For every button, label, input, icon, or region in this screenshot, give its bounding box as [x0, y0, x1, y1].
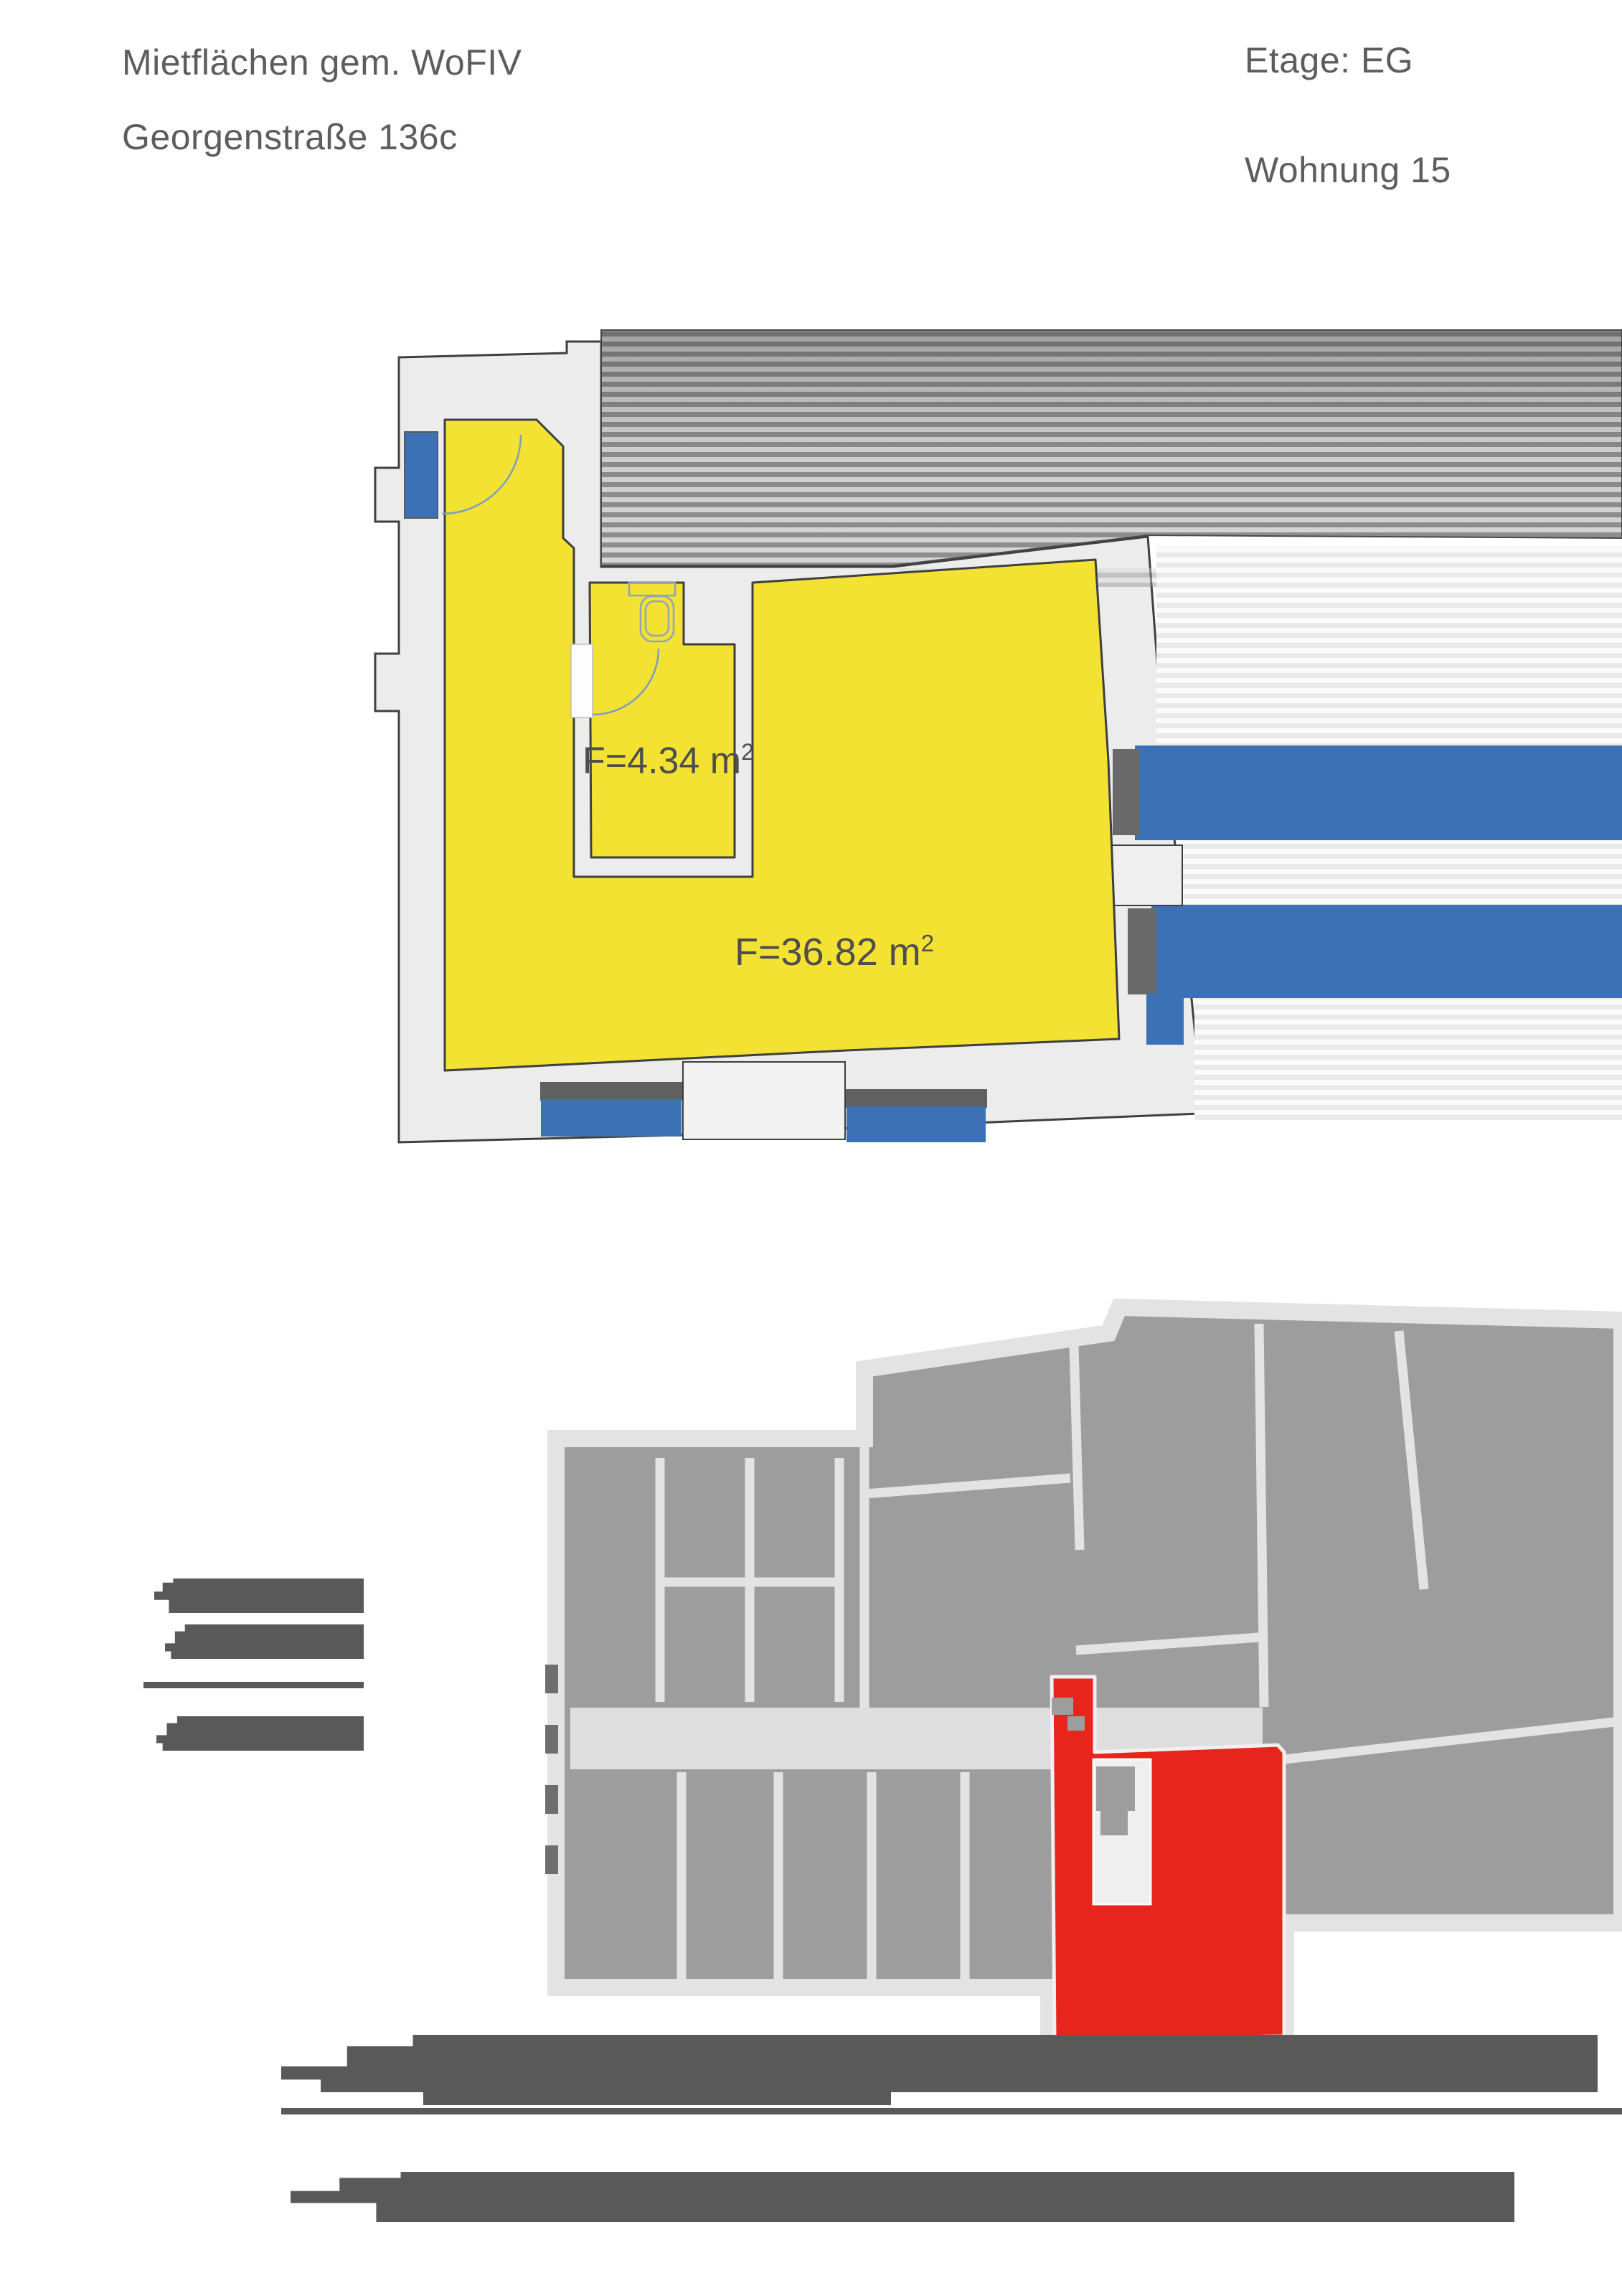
window-corner-right: [1146, 993, 1184, 1045]
window-pier-bottom: [683, 1062, 845, 1139]
sheet-title-line2: Georgenstraße 136c: [122, 116, 458, 158]
smear-stripes-mid: [1182, 840, 1622, 905]
smear-stripes-top: [1156, 547, 1622, 745]
redacted-text-bottom-2: [291, 2172, 1514, 2222]
window-lintel-bottom-1: [540, 1082, 684, 1101]
redacted-text-bottom-1b: [423, 2086, 891, 2105]
window-bottom-2: [847, 1106, 986, 1142]
floorplan-sheet: Mietflächen gem. WoFIV Georgenstraße 136…: [0, 0, 1622, 2296]
unit-red-notch-step-1: [1052, 1698, 1073, 1715]
redacted-text-left-1: [154, 1578, 364, 1613]
smear-stripes-bottom: [1194, 998, 1622, 1120]
sheet-title-line1: Mietflächen gem. WoFIV: [122, 42, 522, 83]
unit-label: Wohnung 15: [1245, 149, 1451, 191]
entry-window: [405, 432, 438, 518]
bathroom-area-label: F=4.34 m2: [583, 739, 754, 782]
redacted-text-bottom-1: [281, 2035, 1598, 2092]
unit-red-toilet-block-1: [1096, 1766, 1135, 1811]
window-reveal-dark-2: [1128, 908, 1156, 994]
redacted-line-left: [143, 1682, 364, 1688]
main-room-area-sup: 2: [921, 931, 935, 957]
detail-plan: [375, 330, 1622, 1142]
main-room-area-value: F=36.82 m: [735, 931, 921, 974]
main-room-area-label: F=36.82 m2: [735, 930, 934, 974]
floorplan-canvas: [0, 0, 1622, 2296]
redacted-text-left-2: [165, 1624, 364, 1659]
window-pier-right: [1112, 845, 1182, 905]
overview-plan: [545, 1307, 1622, 2039]
floor-label: Etage: EG: [1245, 39, 1413, 81]
hatch-band-shading: [601, 330, 1622, 565]
bathroom-area-value: F=4.34 m: [583, 740, 741, 781]
unit-red-notch-step-2: [1067, 1716, 1085, 1731]
window-band-right-1: [1135, 745, 1622, 840]
bathroom-area-sup: 2: [741, 739, 754, 765]
bathroom-door-opening: [571, 644, 593, 717]
window-lintel-bottom-2: [845, 1089, 987, 1108]
window-bottom-1: [541, 1099, 682, 1137]
redacted-line-bottom: [281, 2108, 1622, 2114]
window-band-right-2: [1151, 905, 1622, 998]
unit-red-toilet-block-2: [1100, 1811, 1128, 1835]
redacted-text-left-3: [156, 1716, 364, 1751]
window-reveal-dark-1: [1113, 749, 1140, 835]
